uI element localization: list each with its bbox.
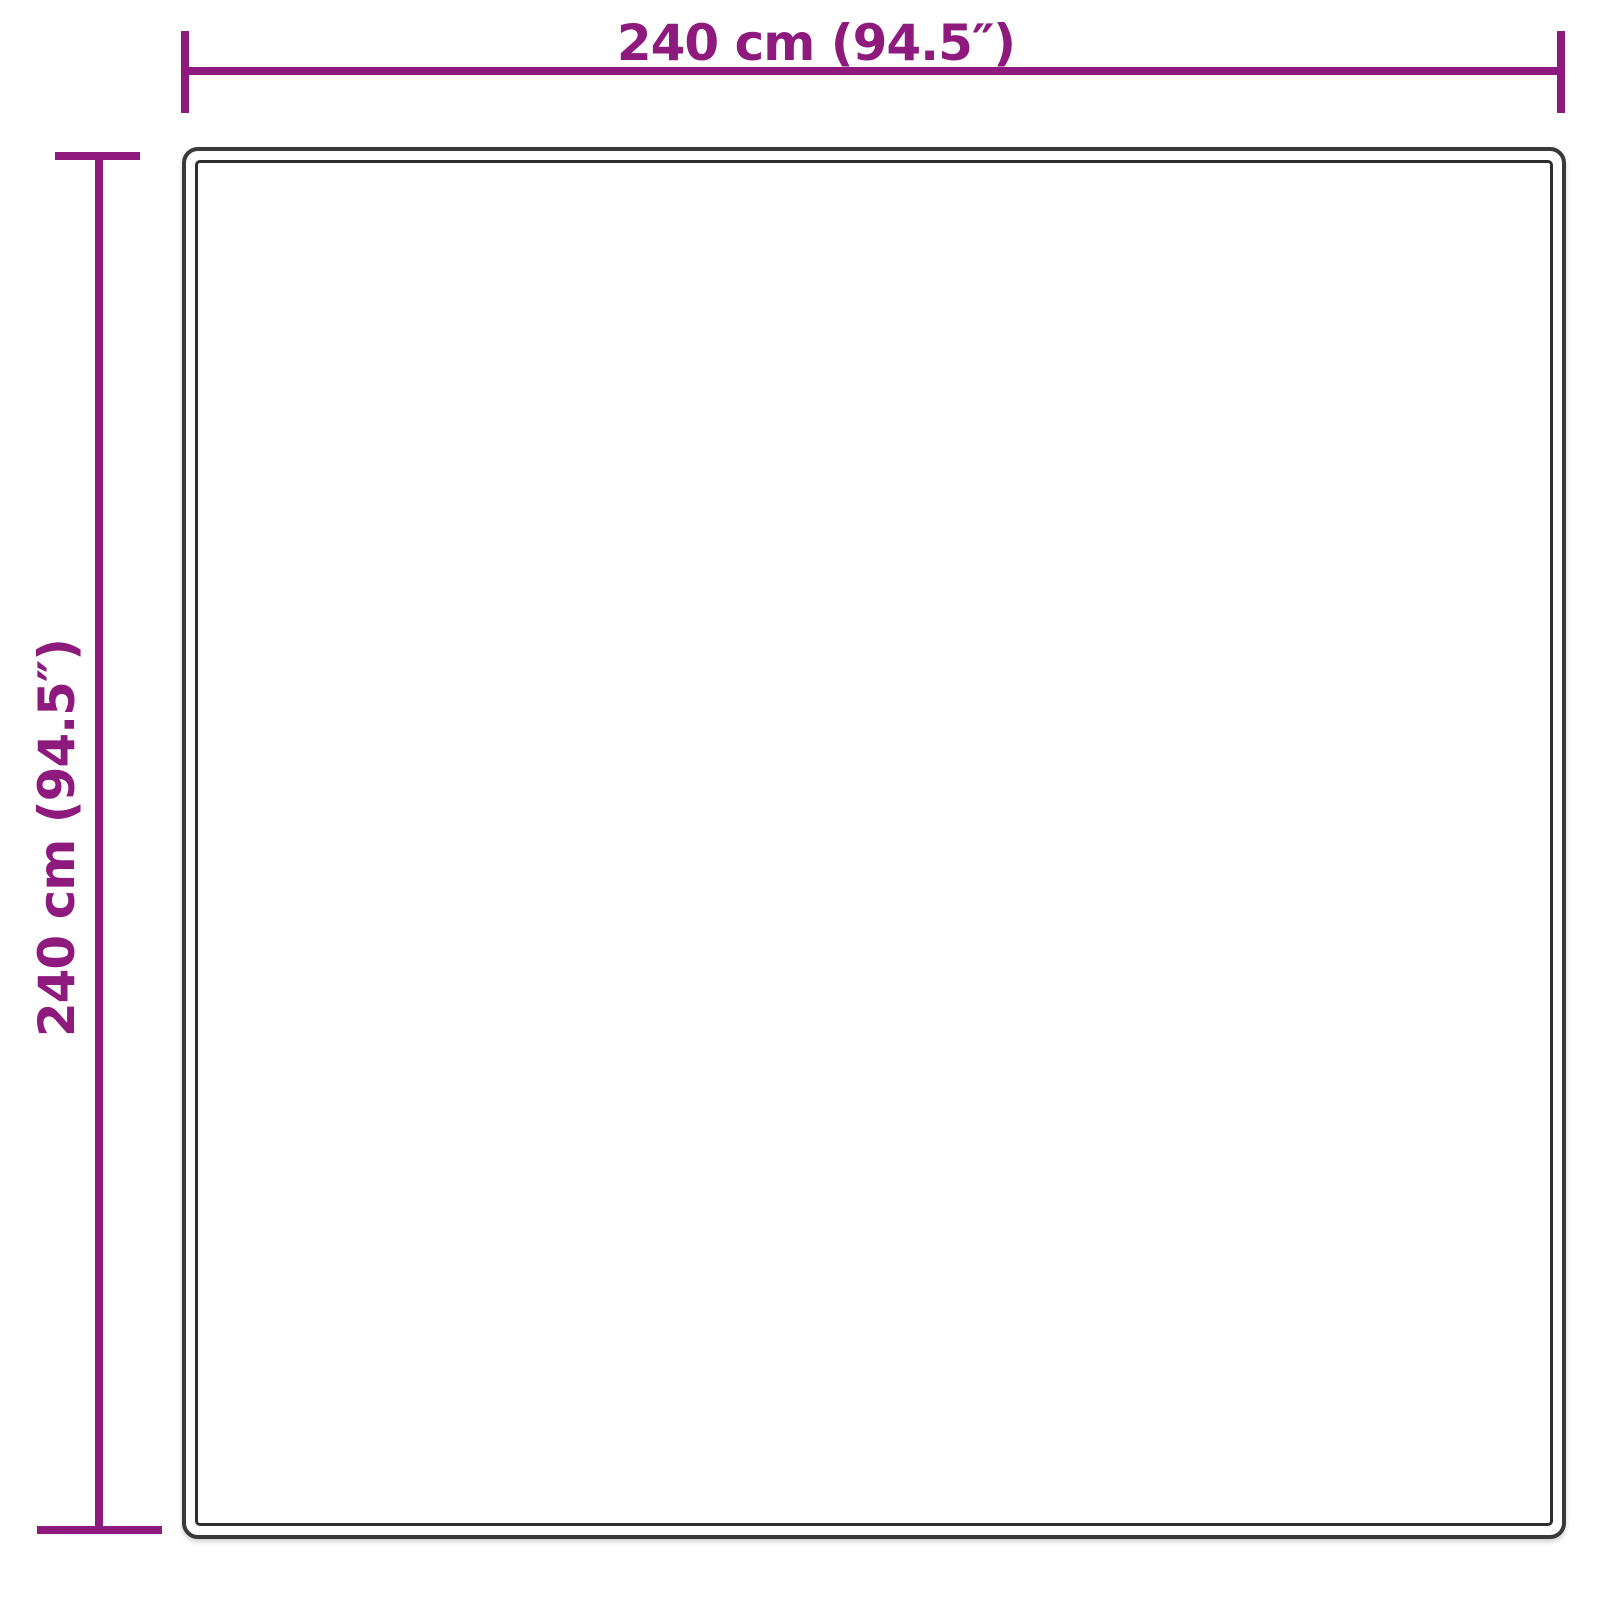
height-dimension-tick-top [55, 152, 140, 160]
width-dimension-line [185, 67, 1562, 75]
product-outline-inner [195, 160, 1553, 1526]
height-dimension-label: 240 cm (94.5″) [32, 639, 82, 1037]
dimension-diagram: 240 cm (94.5″) 240 cm (94.5″) [0, 0, 1600, 1600]
width-dimension-label: 240 cm (94.5″) [617, 18, 1015, 68]
height-dimension-tick-bottom [37, 1526, 162, 1534]
width-dimension-tick-right [1557, 31, 1565, 113]
width-dimension-tick-left [181, 31, 189, 113]
height-dimension-line [95, 157, 103, 1530]
product-outline-outer [182, 147, 1566, 1539]
